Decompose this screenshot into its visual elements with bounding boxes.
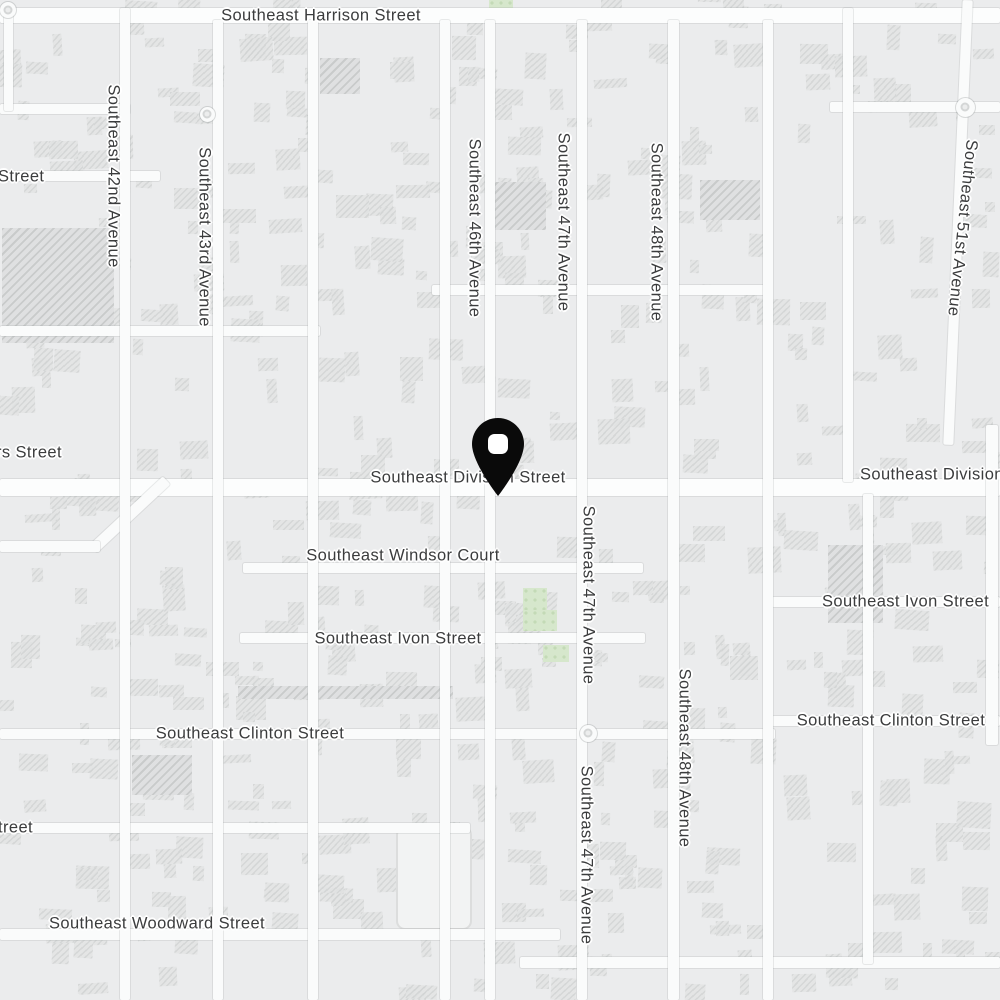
street-label-ivon-right: Southeast Ivon Street xyxy=(822,593,989,612)
street-label-se-46th-avenue: Southeast 46th Avenue xyxy=(465,139,484,318)
street-labels: Southeast Harrison StreetStreetSoutheast… xyxy=(0,0,1000,1000)
map-canvas[interactable]: Southeast Harrison StreetStreetSoutheast… xyxy=(0,0,1000,1000)
street-label-harrison: Southeast Harrison Street xyxy=(221,7,421,26)
street-label-se-51st-avenue: Southeast 51st Avenue xyxy=(943,139,980,318)
street-label-caruthers-partial: rs Street xyxy=(0,444,62,463)
street-label-clinton-west: Southeast Clinton Street xyxy=(156,725,344,744)
street-label-se-48th-avenue-north: Southeast 48th Avenue xyxy=(647,143,666,322)
street-label-windsor-court: Southeast Windsor Court xyxy=(306,547,500,566)
pin-hole xyxy=(488,434,508,454)
street-label-lincoln-partial: Street xyxy=(0,168,44,187)
street-label-se-43rd-avenue: Southeast 43rd Avenue xyxy=(195,147,214,327)
street-label-clinton-east: Southeast Clinton Street xyxy=(797,712,985,731)
pin-body xyxy=(472,418,524,496)
street-label-se-42nd-avenue: Southeast 42nd Avenue xyxy=(104,84,123,267)
street-label-ivon-center: Southeast Ivon Street xyxy=(314,630,481,649)
street-label-taggart-partial: treet xyxy=(0,819,33,838)
location-pin-icon[interactable] xyxy=(467,413,529,497)
street-label-se-47th-avenue-south: Southeast 47th Avenue xyxy=(577,766,596,945)
street-label-se-47th-avenue-mid: Southeast 47th Avenue xyxy=(579,506,598,685)
street-label-woodward: Southeast Woodward Street xyxy=(49,915,265,934)
street-label-se-48th-avenue-south: Southeast 48th Avenue xyxy=(675,669,694,848)
street-label-division-right: Southeast Division Street xyxy=(860,466,1000,485)
street-label-se-47th-avenue-north: Southeast 47th Avenue xyxy=(554,133,573,312)
